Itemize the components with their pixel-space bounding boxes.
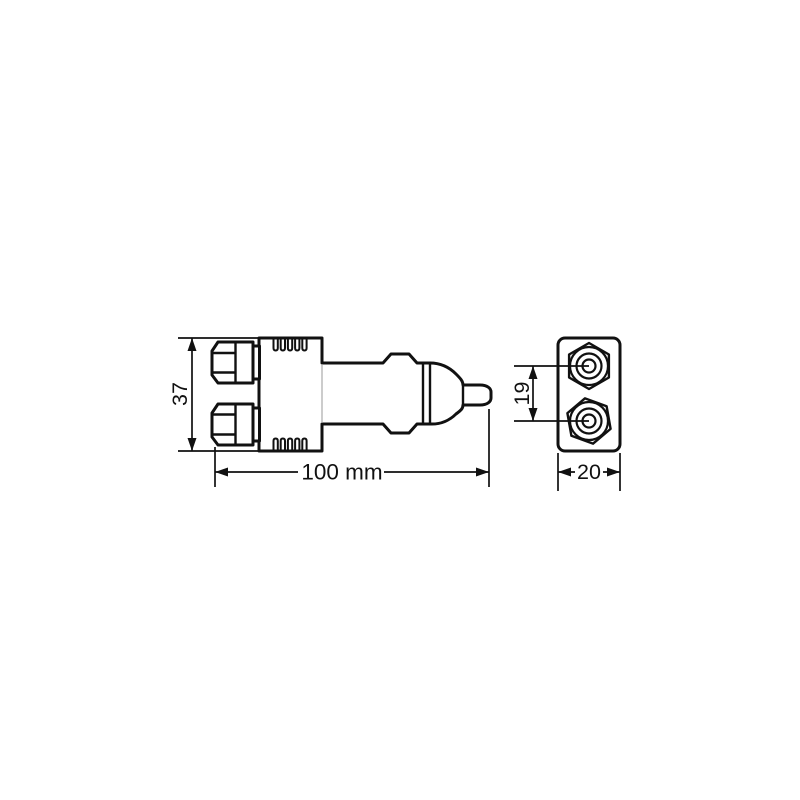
- terminal-post-top: [212, 342, 260, 383]
- side-view: [212, 338, 491, 451]
- spacing-dim-label: 19: [510, 382, 534, 406]
- arrowhead-up: [188, 338, 197, 351]
- plug-dimension-diagram: 37 100 mm 19 20: [0, 0, 800, 800]
- front-view: [558, 338, 620, 451]
- arrowhead-right: [607, 468, 620, 477]
- plug-body-outline: [259, 338, 491, 451]
- arrowhead-down: [529, 408, 538, 421]
- dim-width: 20: [558, 453, 620, 491]
- arrowhead-up: [529, 366, 538, 379]
- width-dim-label: 20: [577, 460, 601, 484]
- arrowhead-down: [188, 438, 197, 451]
- technical-drawing-page: 37 100 mm 19 20: [0, 0, 800, 800]
- arrowhead-right: [476, 468, 489, 477]
- post-nut-outline: [212, 342, 253, 383]
- length-dim-label: 100 mm: [301, 460, 382, 485]
- arrowhead-left: [215, 468, 228, 477]
- terminal-post-bottom: [212, 404, 260, 445]
- arrowhead-left: [558, 468, 571, 477]
- post-nut-outline: [212, 404, 253, 445]
- height-dim-label: 37: [168, 382, 192, 406]
